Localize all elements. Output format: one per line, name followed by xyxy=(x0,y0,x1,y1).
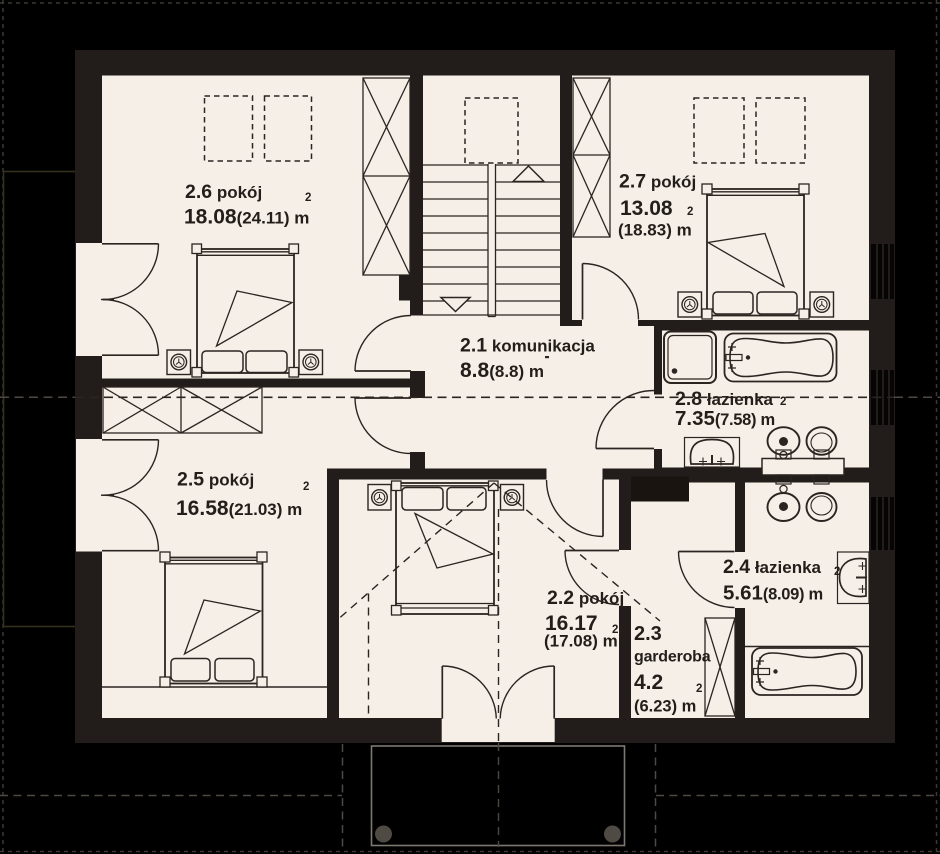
svg-text:2: 2 xyxy=(696,683,702,695)
svg-text:2: 2 xyxy=(303,481,309,493)
svg-text:13.08: 13.08 xyxy=(620,197,673,220)
svg-text:2.2 pokój: 2.2 pokój xyxy=(547,587,624,609)
svg-text:(17.08) m: (17.08) m xyxy=(544,632,618,651)
svg-text:2: 2 xyxy=(834,566,840,578)
svg-text:18.08(24.11) m: 18.08(24.11) m xyxy=(184,206,309,229)
svg-text:(6.23) m: (6.23) m xyxy=(634,698,696,716)
svg-text:2.3: 2.3 xyxy=(634,623,662,645)
svg-text:2.4 łazienka: 2.4 łazienka xyxy=(723,556,822,578)
svg-text:2: 2 xyxy=(780,396,786,408)
svg-text:2: 2 xyxy=(305,192,311,204)
svg-text:(18.83) m: (18.83) m xyxy=(618,221,692,240)
svg-text:2: 2 xyxy=(687,206,693,218)
svg-text:4.2: 4.2 xyxy=(634,671,663,694)
svg-text:garderoba: garderoba xyxy=(634,649,711,666)
svg-text:16.58(21.03) m: 16.58(21.03) m xyxy=(176,497,302,520)
svg-text:5.61(8.09) m: 5.61(8.09) m xyxy=(723,582,823,605)
svg-text:2.7 pokój: 2.7 pokój xyxy=(619,171,696,193)
svg-text:2.6 pokój: 2.6 pokój xyxy=(185,181,262,203)
svg-text:8.8(8.8) m: 8.8(8.8) m xyxy=(460,359,544,382)
svg-text:2.5 pokój: 2.5 pokój xyxy=(177,469,254,491)
svg-text:7.35(7.58) m: 7.35(7.58) m xyxy=(675,407,775,430)
svg-text:2.1 komunikacja: 2.1 komunikacja xyxy=(460,335,595,357)
